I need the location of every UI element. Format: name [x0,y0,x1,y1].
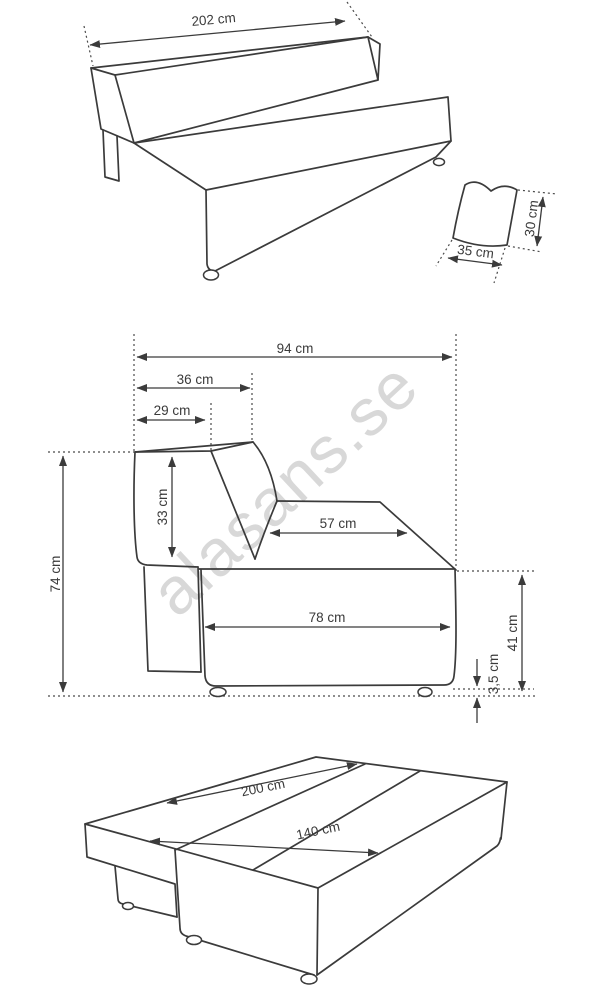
side-backrest-top-label: 36 cm [177,372,214,387]
side-overall-depth-label: 94 cm [277,341,314,356]
bed-foot [187,936,202,945]
extension-line [436,240,452,266]
watermark-text: alasans.se [136,347,432,630]
furniture-dimension-diagram: alasans.se 202 cm [0,0,613,1000]
side-backrest-inner-label: 29 cm [154,403,191,418]
sofa-front-view: 202 cm [84,2,451,280]
sofa-seat-outline [134,97,451,271]
bed-length-label: 200 cm [240,776,286,800]
side-foot-height-label: 3,5 cm [486,654,501,695]
side-seat-depth-label: 57 cm [320,516,357,531]
sofa-foot [204,270,219,280]
extension-line [347,2,372,37]
sofa-foot [434,158,445,165]
front-view-width-label: 202 cm [191,10,236,29]
side-backrest-height-label: 33 cm [155,489,170,526]
sofa-foot [210,688,226,697]
bed-seam [175,764,365,850]
extension-line [84,26,93,66]
dimension-line-35 [448,258,502,265]
bed-width-label: 140 cm [295,819,341,843]
extension-line [518,190,557,194]
extension-line [508,246,542,252]
extension-line [494,248,505,283]
sofa-foot [418,688,432,697]
side-base-depth-label: 78 cm [309,610,346,625]
pillow-width-label: 35 cm [456,242,494,262]
side-seat-height-label: 41 cm [505,615,520,652]
side-overall-height-label: 74 cm [48,556,63,593]
pillow-outline [453,182,517,246]
bed-foot [123,903,134,910]
sofa-side-panel [103,130,119,181]
pillow-view: 30 cm 35 cm [436,182,557,283]
bed-view: 200 cm 140 cm [85,757,507,984]
bed-foot [301,974,317,984]
bed-outline [85,757,507,975]
sofa-backrest-outline [91,37,380,143]
